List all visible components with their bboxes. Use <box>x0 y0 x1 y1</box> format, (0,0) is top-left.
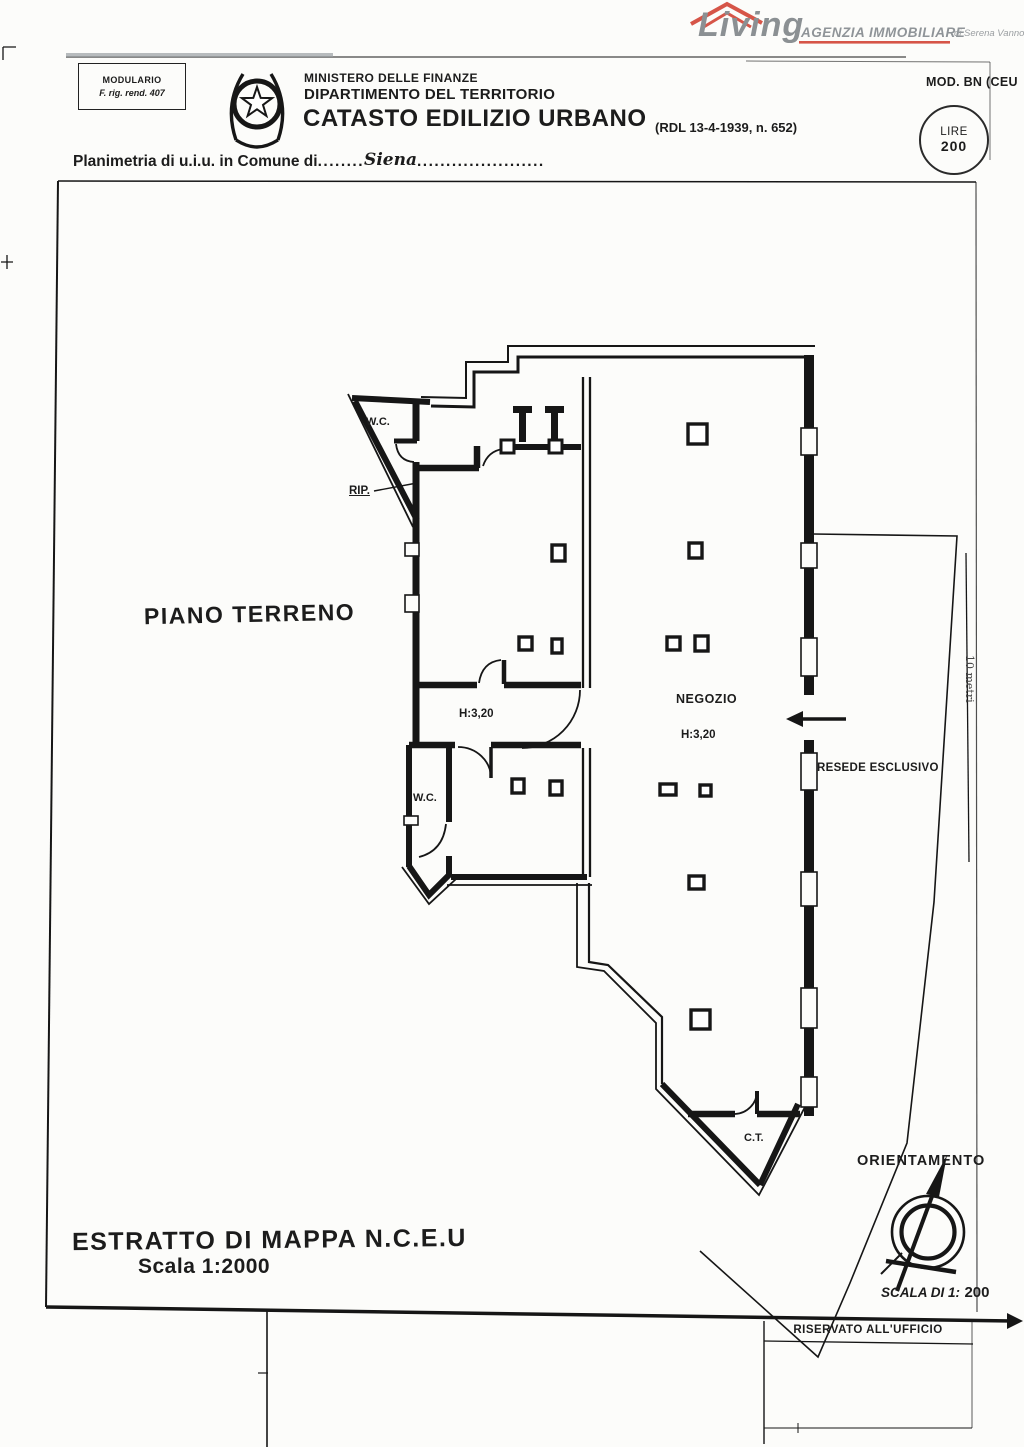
shop-label: NEGOZIO <box>676 692 737 706</box>
lire-stamp-value: 200 <box>941 138 967 154</box>
ministry-line: MINISTERO DELLE FINANZE <box>304 71 478 85</box>
office-box <box>764 1321 973 1444</box>
office-reserved-label: RISERVATO ALL'UFFICIO <box>764 1324 972 1336</box>
orientation-label: ORIENTAMENTO <box>857 1153 985 1169</box>
rip-label: RIP. <box>349 485 370 497</box>
comune-handwritten: Siena <box>364 150 417 170</box>
modulario-subtitle: F. rig. rend. 407 <box>99 88 165 98</box>
document-title-ref: (RDL 13-4-1939, n. 652) <box>655 120 797 135</box>
wc-top-label: W.C. <box>366 416 390 428</box>
leader-dots: ........ <box>318 153 364 170</box>
department-line: DIPARTIMENTO DEL TERRITORIO <box>304 86 555 103</box>
hall-height-label: H:3,20 <box>459 708 494 720</box>
leader-dots: ...................... <box>417 153 545 170</box>
lire-stamp-label: LIRE <box>940 126 968 138</box>
document-title: CATASTO EDILIZIO URBANO <box>303 105 647 133</box>
brand-tagline: AGENZIA IMMOBILIARE <box>801 25 965 40</box>
entrance-arrow-icon <box>786 711 846 727</box>
wc-bottom-label: W.C. <box>413 792 437 804</box>
mod-code: MOD. BN (CEU <box>926 75 1018 89</box>
floor-label: PIANO TERRENO <box>144 599 356 630</box>
compass-scale: SCALA DI 1: 200 <box>881 1284 990 1302</box>
state-emblem-icon <box>231 74 282 147</box>
window-slots <box>404 428 817 1107</box>
modulario-box: MODULARIO F. rig. rend. 407 <box>78 63 186 110</box>
cadastral-document-page: Living AGENZIA IMMOBILIARE di Serena Van… <box>0 0 1024 1447</box>
floor-plan-walls <box>348 346 815 1195</box>
planimetria-label: Planimetria di u.i.u. in Comune di <box>73 153 318 170</box>
compass-scale-label: SCALA DI 1: <box>881 1285 960 1300</box>
bottom-left-marks <box>258 1311 268 1447</box>
crop-marks <box>1 47 16 269</box>
scale-bar-line <box>966 553 969 862</box>
brand-subtitle: di Serena Vannoni <box>954 28 1024 39</box>
compass-scale-value: 200 <box>964 1284 989 1301</box>
ct-label: C.T. <box>744 1132 764 1144</box>
lire-stamp: LIRE 200 <box>919 105 989 175</box>
scale-bar-label: 10 metri <box>963 655 976 703</box>
tagline-underline <box>799 41 950 44</box>
shop-height-label: H:3,20 <box>681 729 716 741</box>
map-extract-scale: Scala 1:2000 <box>138 1255 270 1279</box>
modulario-title: MODULARIO <box>102 75 161 85</box>
map-extract-title: ESTRATTO DI MAPPA N.C.E.U <box>72 1224 467 1257</box>
planimetria-line: Planimetria di u.i.u. in Comune di......… <box>73 151 545 171</box>
brand-logo: Living <box>698 6 804 45</box>
resede-label: RESEDE ESCLUSIVO <box>817 762 939 774</box>
pillars <box>512 424 711 1029</box>
